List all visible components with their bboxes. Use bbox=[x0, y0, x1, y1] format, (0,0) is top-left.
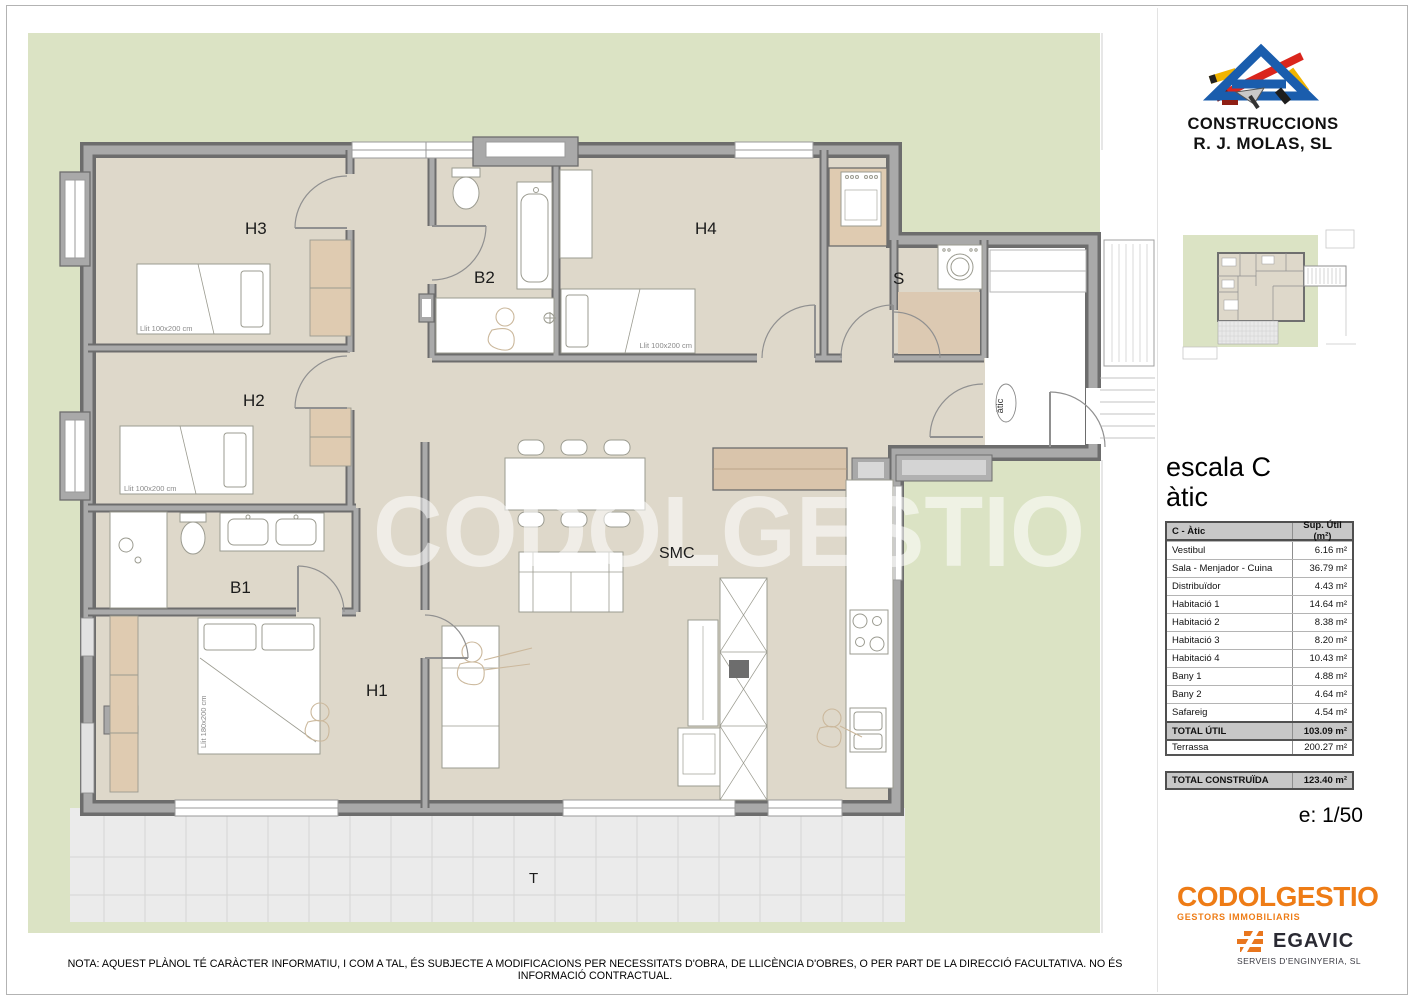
table-row: Bany 24.64 m² bbox=[1167, 685, 1352, 703]
room-label-h1: H1 bbox=[366, 681, 388, 700]
bed-label-h3: Llit 100x200 cm bbox=[140, 324, 193, 333]
row-name: Habitació 3 bbox=[1167, 632, 1293, 649]
table-row: Habitació 38.20 m² bbox=[1167, 631, 1352, 649]
row-name: Sala - Menjador - Cuina bbox=[1167, 560, 1293, 577]
stair-core bbox=[1100, 33, 1155, 933]
sheet-title: escala C àtic bbox=[1166, 452, 1271, 512]
builder-logo-block: CONSTRUCCIONS R. J. MOLAS, SL bbox=[1163, 40, 1363, 154]
room-label-h2: H2 bbox=[243, 391, 265, 410]
bed-h1 bbox=[198, 618, 320, 754]
table-row: Safareig4.54 m² bbox=[1167, 703, 1352, 721]
row-name: Habitació 1 bbox=[1167, 596, 1293, 613]
table-row: Habitació 114.64 m² bbox=[1167, 595, 1352, 613]
areas-table: C - Àtic Sup. Útil (m²) Vestibul6.16 m² … bbox=[1165, 521, 1354, 742]
builder-logo-icon bbox=[1198, 40, 1328, 112]
drawing-sheet: CODOLGESTIO H3 B2 H4 S H2 B1 H1 SMC T Ll… bbox=[0, 0, 1414, 1000]
bed-label-h1: Llit 180x200 cm bbox=[199, 695, 208, 748]
table-row: Bany 14.88 m² bbox=[1167, 667, 1352, 685]
row-value: 10.43 m² bbox=[1293, 653, 1352, 664]
table-row: Habitació 28.38 m² bbox=[1167, 613, 1352, 631]
terrassa-row: Terrassa 200.27 m² bbox=[1165, 739, 1354, 756]
bed-label-h4: Llit 100x200 cm bbox=[639, 341, 692, 350]
watermark-text: CODOLGESTIO bbox=[373, 476, 1085, 588]
elevator-shaft bbox=[1104, 240, 1154, 366]
egavic-wordmark: EGAVIC bbox=[1273, 930, 1354, 953]
scale-label: e: 1/50 bbox=[1238, 804, 1363, 828]
table-row: Vestibul6.16 m² bbox=[1167, 541, 1352, 559]
entry-tag-label: àtic bbox=[995, 398, 1006, 413]
row-name: Distribuïdor bbox=[1167, 578, 1293, 595]
terrace-paving bbox=[70, 808, 905, 922]
entry-door-opening bbox=[1086, 388, 1101, 444]
table-row: Habitació 410.43 m² bbox=[1167, 649, 1352, 667]
bed-label-h2: Llit 100x200 cm bbox=[124, 484, 177, 493]
egavic-tagline: SERVEIS D'ENGINYERIA, SL bbox=[1237, 956, 1361, 966]
vestibule-closet bbox=[990, 250, 1086, 292]
table-row: Distribuïdor4.43 m² bbox=[1167, 577, 1352, 595]
areas-col-room: C - Àtic bbox=[1167, 523, 1293, 539]
builder-name-line1: CONSTRUCCIONS bbox=[1163, 115, 1363, 134]
codolgestio-logo: CODOLGESTIO GESTORS IMMOBILIARIS bbox=[1177, 883, 1378, 922]
total-util-label: TOTAL ÚTIL bbox=[1167, 723, 1293, 740]
egavic-icon bbox=[1237, 931, 1265, 953]
row-value: 36.79 m² bbox=[1293, 563, 1352, 574]
row-name: Bany 1 bbox=[1167, 668, 1293, 685]
sheet-title-line1: escala C bbox=[1166, 452, 1271, 482]
floor-plan-canvas: CODOLGESTIO H3 B2 H4 S H2 B1 H1 SMC T Ll… bbox=[0, 0, 1160, 1000]
areas-col-surface: Sup. Útil (m²) bbox=[1293, 520, 1352, 542]
row-name: Vestibul bbox=[1167, 542, 1293, 559]
terrassa-value: 200.27 m² bbox=[1293, 742, 1352, 753]
builder-name-line2: R. J. MOLAS, SL bbox=[1163, 134, 1363, 154]
room-label-terrace: T bbox=[529, 870, 538, 887]
terrassa-label: Terrassa bbox=[1167, 741, 1293, 754]
row-name: Habitació 4 bbox=[1167, 650, 1293, 667]
closet-h4 bbox=[560, 170, 592, 258]
sheet-title-line2: àtic bbox=[1166, 482, 1271, 512]
room-label-h3: H3 bbox=[245, 219, 267, 238]
total-built-value: 123.40 m² bbox=[1293, 775, 1352, 786]
row-name: Bany 2 bbox=[1167, 686, 1293, 703]
table-row: Sala - Menjador - Cuina36.79 m² bbox=[1167, 559, 1352, 577]
row-value: 4.88 m² bbox=[1293, 671, 1352, 682]
total-built-label: TOTAL CONSTRUÏDA bbox=[1167, 773, 1293, 788]
disclaimer-note: NOTA: AQUEST PLÀNOL TÉ CARÀCTER INFORMAT… bbox=[40, 958, 1150, 982]
row-value: 14.64 m² bbox=[1293, 599, 1352, 610]
site-plan-thumbnail bbox=[1178, 226, 1360, 366]
row-name: Safareig bbox=[1167, 704, 1293, 721]
row-value: 8.20 m² bbox=[1293, 635, 1352, 646]
room-label-b1: B1 bbox=[230, 578, 251, 597]
row-value: 6.16 m² bbox=[1293, 545, 1352, 556]
total-util-row: TOTAL ÚTIL 103.09 m² bbox=[1167, 721, 1352, 740]
row-name: Habitació 2 bbox=[1167, 614, 1293, 631]
room-label-smc: SMC bbox=[659, 545, 695, 562]
total-built-row: TOTAL CONSTRUÏDA 123.40 m² bbox=[1165, 771, 1354, 790]
total-util-value: 103.09 m² bbox=[1293, 726, 1352, 737]
row-value: 4.64 m² bbox=[1293, 689, 1352, 700]
row-value: 8.38 m² bbox=[1293, 617, 1352, 628]
row-value: 4.54 m² bbox=[1293, 707, 1352, 718]
room-label-s: S bbox=[893, 269, 904, 288]
room-label-h4: H4 bbox=[695, 219, 717, 238]
areas-table-header: C - Àtic Sup. Útil (m²) bbox=[1167, 523, 1352, 541]
room-label-b2: B2 bbox=[474, 268, 495, 287]
codolgestio-tagline: GESTORS IMMOBILIARIS bbox=[1177, 912, 1378, 922]
codolgestio-wordmark: CODOLGESTIO bbox=[1177, 883, 1378, 911]
row-value: 4.43 m² bbox=[1293, 581, 1352, 592]
egavic-logo: EGAVIC SERVEIS D'ENGINYERIA, SL bbox=[1237, 930, 1361, 966]
